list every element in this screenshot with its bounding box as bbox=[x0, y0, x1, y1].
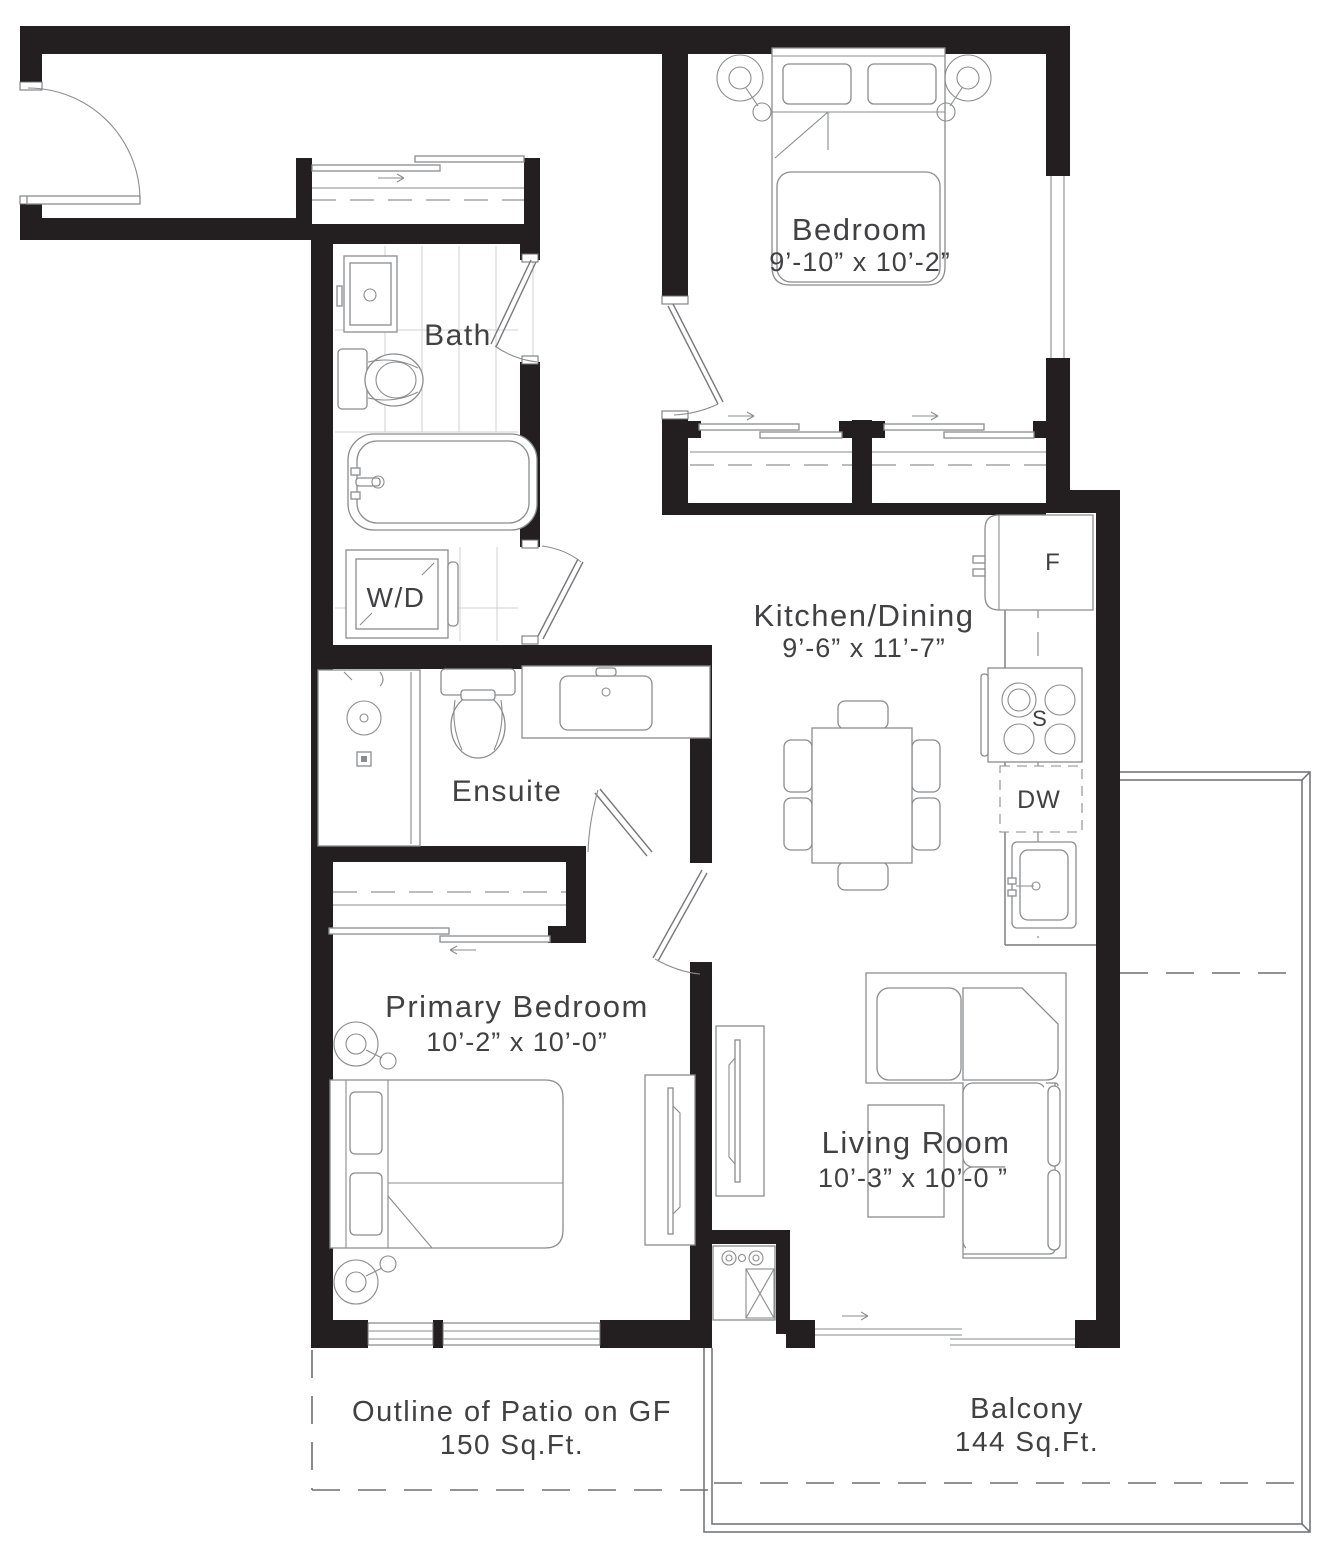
entry-door bbox=[20, 82, 140, 204]
patio-area: 150 Sq.Ft. bbox=[440, 1429, 584, 1460]
bath-door bbox=[491, 254, 538, 364]
balcony-area: 144 Sq.Ft. bbox=[955, 1426, 1099, 1457]
laundry-label: W/D bbox=[367, 582, 426, 613]
kitchen-label: Kitchen/Dining bbox=[754, 598, 975, 633]
primary-bedroom-door bbox=[653, 846, 712, 976]
hall-closet bbox=[312, 156, 524, 200]
bedroom-door bbox=[662, 296, 723, 419]
kitchen-dims: 9’-6” x 11’-7” bbox=[782, 633, 946, 663]
ensuite-vanity bbox=[522, 666, 710, 738]
stove-label: S bbox=[1032, 706, 1048, 731]
balcony-label: Balcony bbox=[970, 1393, 1084, 1425]
bath-toilet bbox=[338, 349, 423, 409]
coffee-table bbox=[868, 1105, 944, 1217]
dishwasher: DW bbox=[1000, 766, 1082, 832]
living-tv-console bbox=[716, 1026, 764, 1196]
bath-sink bbox=[337, 256, 397, 332]
ensuite-toilet bbox=[441, 669, 515, 758]
primary-bedroom-windows bbox=[368, 1323, 600, 1345]
bedroom-closet-left bbox=[690, 412, 852, 465]
floor-plan-page: F S DW bbox=[0, 0, 1335, 1557]
fridge: F bbox=[973, 515, 1093, 610]
bedroom-dims: 9’-10” x 10’-2” bbox=[769, 247, 951, 277]
living-room-dims: 10’-3” x 10’-0 ” bbox=[818, 1163, 1008, 1193]
mechanical-closet bbox=[713, 1246, 775, 1320]
primary-bedroom-dims: 10’-2” x 10’-0” bbox=[426, 1027, 608, 1057]
dishwasher-label: DW bbox=[1017, 786, 1061, 814]
fridge-label: F bbox=[1045, 549, 1061, 576]
primary-lamp-top bbox=[334, 1022, 396, 1069]
stove: S bbox=[981, 668, 1082, 762]
dining-table-set bbox=[784, 701, 940, 890]
ensuite-door bbox=[588, 789, 652, 856]
kitchen-sink bbox=[1008, 842, 1076, 928]
floor-plan-drawing: F S DW bbox=[0, 0, 1335, 1557]
living-room-label: Living Room bbox=[822, 1125, 1011, 1160]
ensuite-label: Ensuite bbox=[452, 775, 563, 808]
bedroom-closet-right bbox=[872, 412, 1046, 465]
primary-closet bbox=[329, 892, 566, 954]
patio-label: Outline of Patio on GF bbox=[352, 1396, 672, 1428]
bedroom-label: Bedroom bbox=[792, 212, 928, 247]
primary-bedroom-label: Primary Bedroom bbox=[385, 989, 649, 1024]
laundry-door bbox=[522, 540, 583, 644]
primary-tv-stand bbox=[645, 1075, 695, 1245]
primary-bed bbox=[330, 1080, 563, 1248]
bath-label: Bath bbox=[424, 319, 492, 352]
bedroom-window bbox=[1051, 176, 1064, 358]
primary-lamp-bottom bbox=[334, 1256, 396, 1304]
balcony-sliding-door bbox=[815, 1312, 1075, 1346]
bathtub bbox=[348, 434, 537, 530]
bedroom-lamp-left bbox=[717, 55, 771, 121]
ensuite-shower bbox=[318, 670, 420, 846]
